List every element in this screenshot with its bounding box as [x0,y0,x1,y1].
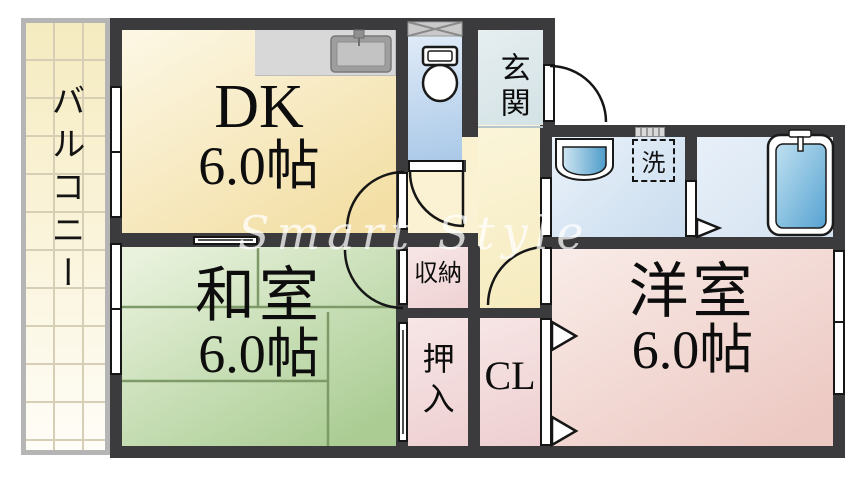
room-label-youshitsu: 洋室 6.0帖 [552,262,833,378]
dk-size: 6.0帖 [122,139,396,194]
floorplan: バルコニー [0,0,862,478]
room-label-genkan: 玄関 [496,52,527,122]
room-label-cl: CL [480,356,540,397]
washing-machine-label: 洗 [642,143,666,178]
washing-machine-area: 洗 [632,139,675,182]
toilet-icon [423,47,457,101]
washitsu-name: 和室 [122,266,396,327]
door-arc-entrance [550,66,606,122]
watermark: Smart Style [238,206,591,260]
room-label-dk: DK 6.0帖 [122,76,396,194]
washbasin-icon [556,139,613,180]
youshitsu-name: 洋室 [552,262,833,323]
youshitsu-size: 6.0帖 [552,323,833,378]
washitsu-size: 6.0帖 [122,327,396,382]
bathtub-icon [768,130,833,235]
cl-door-triangle-bottom [552,417,576,445]
dk-name: DK [122,76,396,139]
bathroom-door-triangle [697,219,719,237]
room-label-storage: 収納 [408,262,468,286]
kitchen-sink-icon [331,30,391,72]
room-label-washitsu: 和室 6.0帖 [122,266,396,382]
room-label-oshiire: 押入 [420,342,453,422]
toilet-vent-icon [408,22,462,36]
